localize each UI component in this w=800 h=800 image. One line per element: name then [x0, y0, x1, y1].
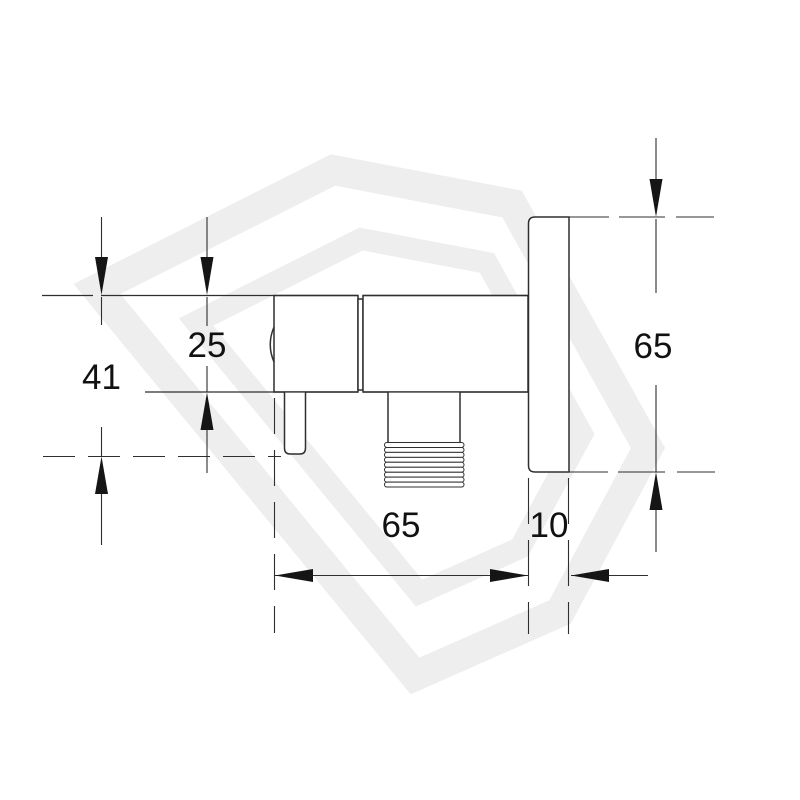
arrow-down-icon: [650, 179, 663, 217]
thread-ridges: [385, 443, 465, 488]
arrow-down-icon: [201, 257, 214, 295]
arrow-left-icon: [275, 569, 313, 582]
handle-outlet-pipe: [285, 392, 306, 454]
valve-handle: [274, 296, 358, 393]
arrow-up-icon: [650, 472, 663, 510]
arrow-up-icon: [95, 457, 108, 495]
dim-label-65-right: 65: [634, 327, 673, 366]
valve-body: [363, 296, 528, 393]
dim-label-65-bottom: 65: [382, 506, 421, 545]
dim-label-10: 10: [530, 506, 569, 545]
threaded-outlet-fill: [388, 392, 460, 443]
dimension-drawing: 41 25: [0, 0, 800, 800]
dim-label-41: 41: [82, 358, 121, 397]
dim-label-25: 25: [188, 326, 227, 365]
drawing-svg: 41 25: [0, 0, 800, 800]
arrow-right-icon: [490, 569, 528, 582]
wall-plate: [529, 217, 570, 472]
